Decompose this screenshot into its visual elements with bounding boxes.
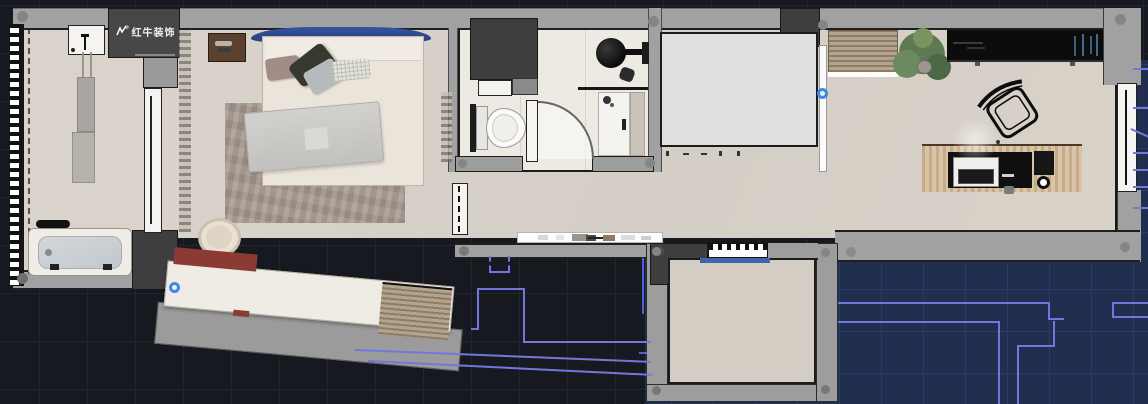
counter-detail — [953, 42, 983, 44]
cad-line — [1133, 107, 1148, 109]
cad-line — [523, 341, 651, 343]
balcony-bottom-wall — [646, 384, 838, 402]
bedroom-corridor-window-dash — [458, 186, 460, 232]
laundry-bedroom-window-glazing — [150, 96, 152, 224]
balcony-hatched-window — [708, 243, 768, 258]
counter-leg — [1070, 62, 1075, 66]
balcony-dot — [821, 385, 830, 394]
wall-dot — [1115, 14, 1126, 25]
shower-handle — [622, 119, 626, 130]
faucet-icon — [84, 36, 86, 50]
office-side-window — [1117, 83, 1137, 192]
shower-knob — [610, 103, 614, 107]
bull-logo-icon — [115, 24, 129, 38]
counter-leg — [975, 62, 980, 66]
balcony-dot — [821, 248, 830, 257]
logo-wall-block: 红牛装饰 — [108, 8, 180, 58]
cad-line — [477, 288, 525, 290]
tub-foot — [103, 264, 112, 270]
tub-foot — [50, 264, 59, 270]
cad-line — [1133, 186, 1148, 188]
towel-bar — [36, 220, 70, 228]
black-counter — [947, 30, 1103, 62]
counter-blue-mark — [1082, 34, 1084, 56]
wardrobe-grip[interactable] — [169, 282, 180, 293]
shelf-item — [603, 235, 615, 241]
cad-line — [998, 321, 1000, 404]
balcony-dot — [652, 247, 661, 256]
cup — [1037, 176, 1050, 189]
wall-step-block — [143, 57, 178, 88]
keyboard — [1002, 174, 1014, 177]
office-chair — [972, 78, 1052, 150]
balcony-floor — [668, 258, 816, 384]
cad-line — [1133, 207, 1148, 209]
cad-line — [1133, 169, 1148, 171]
tick-mark — [701, 153, 707, 155]
washer — [72, 132, 95, 183]
wall-dot — [846, 247, 856, 257]
cad-line — [523, 288, 525, 343]
tick-mark — [683, 153, 689, 155]
cad-line — [1112, 316, 1148, 318]
bathroom-door-leaf — [526, 100, 538, 162]
shelf-item — [538, 235, 548, 240]
glass-partition — [578, 87, 648, 90]
storage-grip[interactable] — [817, 88, 828, 99]
cad-dash — [508, 256, 510, 271]
counter-blue-mark — [1074, 36, 1076, 56]
wood-cabinet — [828, 30, 898, 73]
bedroom-curtain-right — [441, 92, 452, 162]
shelf-item — [641, 236, 651, 240]
cad-line — [1048, 318, 1064, 320]
cad-line — [1017, 345, 1019, 404]
wall-dot — [1120, 242, 1130, 252]
cad-line — [477, 288, 479, 330]
tick-mark — [737, 151, 740, 156]
nightstand-item — [218, 48, 231, 52]
vanity-side — [512, 78, 538, 95]
shelf-item — [556, 235, 564, 240]
cad-line — [471, 328, 479, 330]
cad-line — [838, 321, 1000, 323]
bedroom-corridor-window — [452, 183, 468, 235]
heater-pipe — [82, 52, 84, 77]
balcony-sill-line — [700, 258, 770, 263]
shelf-item — [621, 235, 635, 240]
clock-item — [215, 41, 232, 46]
cad-line — [489, 271, 510, 273]
round-basin — [596, 38, 626, 68]
cad-line — [838, 302, 1050, 304]
nightstand-left — [208, 33, 246, 62]
wall-dot — [645, 158, 655, 168]
watermark: 红牛装饰 — [109, 23, 181, 39]
wood-cabinet-edge — [828, 72, 898, 77]
wall-dot — [459, 246, 469, 256]
wall-dot — [458, 159, 467, 168]
monitor-screen — [958, 169, 994, 184]
cad-line — [1133, 68, 1148, 70]
tick-mark — [719, 151, 722, 156]
counter-detail — [967, 47, 985, 49]
bedroom-curtain-left — [179, 30, 191, 232]
wall-dot — [17, 273, 28, 284]
wall-dot — [17, 11, 28, 22]
heater-pipe — [90, 52, 92, 77]
storage-volume — [660, 32, 818, 147]
watermark-text: 红牛装饰 — [132, 24, 176, 39]
balcony-dot — [652, 386, 661, 395]
shelf-item — [588, 237, 604, 239]
tub-drain — [45, 249, 52, 256]
wall-dot — [818, 20, 828, 30]
vanity-drawer — [478, 80, 512, 96]
wall-shelf — [517, 232, 663, 243]
wardrobe-wood-end — [378, 282, 452, 340]
living-bottom-wall — [835, 230, 1140, 262]
cad-line-bright — [642, 258, 644, 314]
cad-viewport[interactable]: 红牛装饰 — [0, 0, 1148, 404]
cad-line — [1133, 152, 1148, 154]
tick-mark — [666, 151, 669, 156]
storage-side-panel — [819, 45, 827, 172]
exterior-wall-hatch — [10, 24, 19, 286]
stool-cushion — [206, 225, 232, 249]
pillow-patterned — [332, 58, 371, 82]
sink-drain — [71, 48, 75, 52]
water-heater — [77, 77, 95, 132]
counter-blue-mark — [1096, 34, 1098, 56]
desk-gadget — [1004, 186, 1014, 194]
desk-tray — [1034, 151, 1054, 175]
office-side-window-glazing — [1125, 90, 1127, 185]
shower-bench — [630, 92, 645, 156]
cad-line — [1017, 345, 1055, 347]
bathroom-vanity-block — [470, 18, 538, 80]
cad-line-bright — [639, 352, 647, 354]
wall-dot — [648, 16, 659, 27]
blanket-fold — [304, 127, 329, 150]
laundry-bedroom-window — [144, 88, 162, 233]
top-exterior-wall — [13, 8, 1140, 30]
balcony-right-wall — [816, 243, 838, 402]
cad-line — [1112, 302, 1148, 304]
plant-pot — [917, 60, 932, 74]
potted-plant — [893, 28, 955, 92]
exterior-wall-line — [19, 24, 24, 286]
cad-line — [1053, 321, 1055, 347]
cad-dash — [489, 256, 491, 271]
counter-blue-mark — [1090, 36, 1092, 54]
faucet-head — [81, 34, 89, 37]
basin-wall-mount — [642, 42, 649, 64]
watermark-tagline-bar — [135, 54, 175, 56]
